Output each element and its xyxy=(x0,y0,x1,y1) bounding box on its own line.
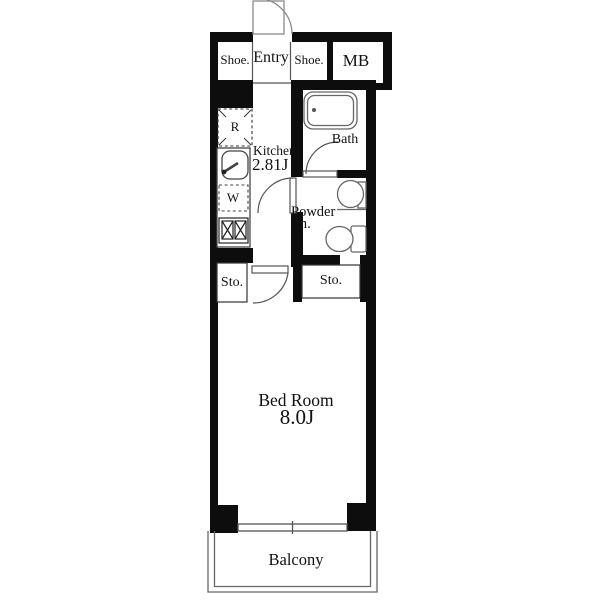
label-balcony: Balcony xyxy=(269,551,324,568)
bath-fixtures xyxy=(304,92,357,129)
entry-door xyxy=(253,0,292,34)
bedroom-door-swing-arc xyxy=(253,273,288,303)
label-shoe-right: Shoe. xyxy=(294,53,323,67)
bedroom-door-leaf xyxy=(252,266,288,273)
wall-storage-right-left-side xyxy=(293,267,302,302)
floor-plan: Shoe. Entry Shoe. MB R Kitchen 2.81J W B… xyxy=(0,0,600,600)
wash-basin xyxy=(338,181,364,208)
wall-bath-top xyxy=(303,80,376,90)
fridge-corner-tick xyxy=(244,110,251,117)
label-storage-right: Sto. xyxy=(320,274,342,289)
bath-door-sill xyxy=(303,171,337,177)
wall-right-outer xyxy=(366,90,376,531)
label-entry: Entry xyxy=(253,50,289,67)
label-bath: Bath xyxy=(332,133,358,148)
wall-mb-right xyxy=(383,32,392,90)
bathtub-outer xyxy=(304,92,357,129)
wall-top-right-of-door xyxy=(292,32,392,42)
wall-storage-right-pier xyxy=(360,255,366,302)
fridge-corner-tick xyxy=(219,138,226,145)
wall-hall-bath xyxy=(291,80,303,177)
faucet-base xyxy=(222,170,227,175)
wall-below-shoe-left xyxy=(210,80,253,108)
fridge-corner-tick xyxy=(219,110,226,117)
label-kitchen-size: 2.81J xyxy=(252,156,288,174)
label-meter-box: MB xyxy=(343,52,369,70)
powder-door-swing-arc xyxy=(258,178,293,213)
floor-plan-drawing xyxy=(0,0,600,600)
label-refrigerator: R xyxy=(231,120,240,134)
label-bedroom-size: 8.0J xyxy=(280,406,314,428)
wall-bath-powder xyxy=(337,170,366,178)
label-powder-room: Powder rm. xyxy=(291,205,335,232)
wall-kitchen-bottom xyxy=(210,248,253,263)
fridge-corner-tick xyxy=(244,138,251,145)
label-shoe-left: Shoe. xyxy=(220,53,249,67)
wall-pier-bottom-right xyxy=(347,503,376,531)
label-storage-left: Sto. xyxy=(221,276,243,291)
label-washer: W xyxy=(227,191,239,205)
wall-pier-bottom-left xyxy=(210,505,238,533)
bathtub-drain xyxy=(312,108,316,112)
